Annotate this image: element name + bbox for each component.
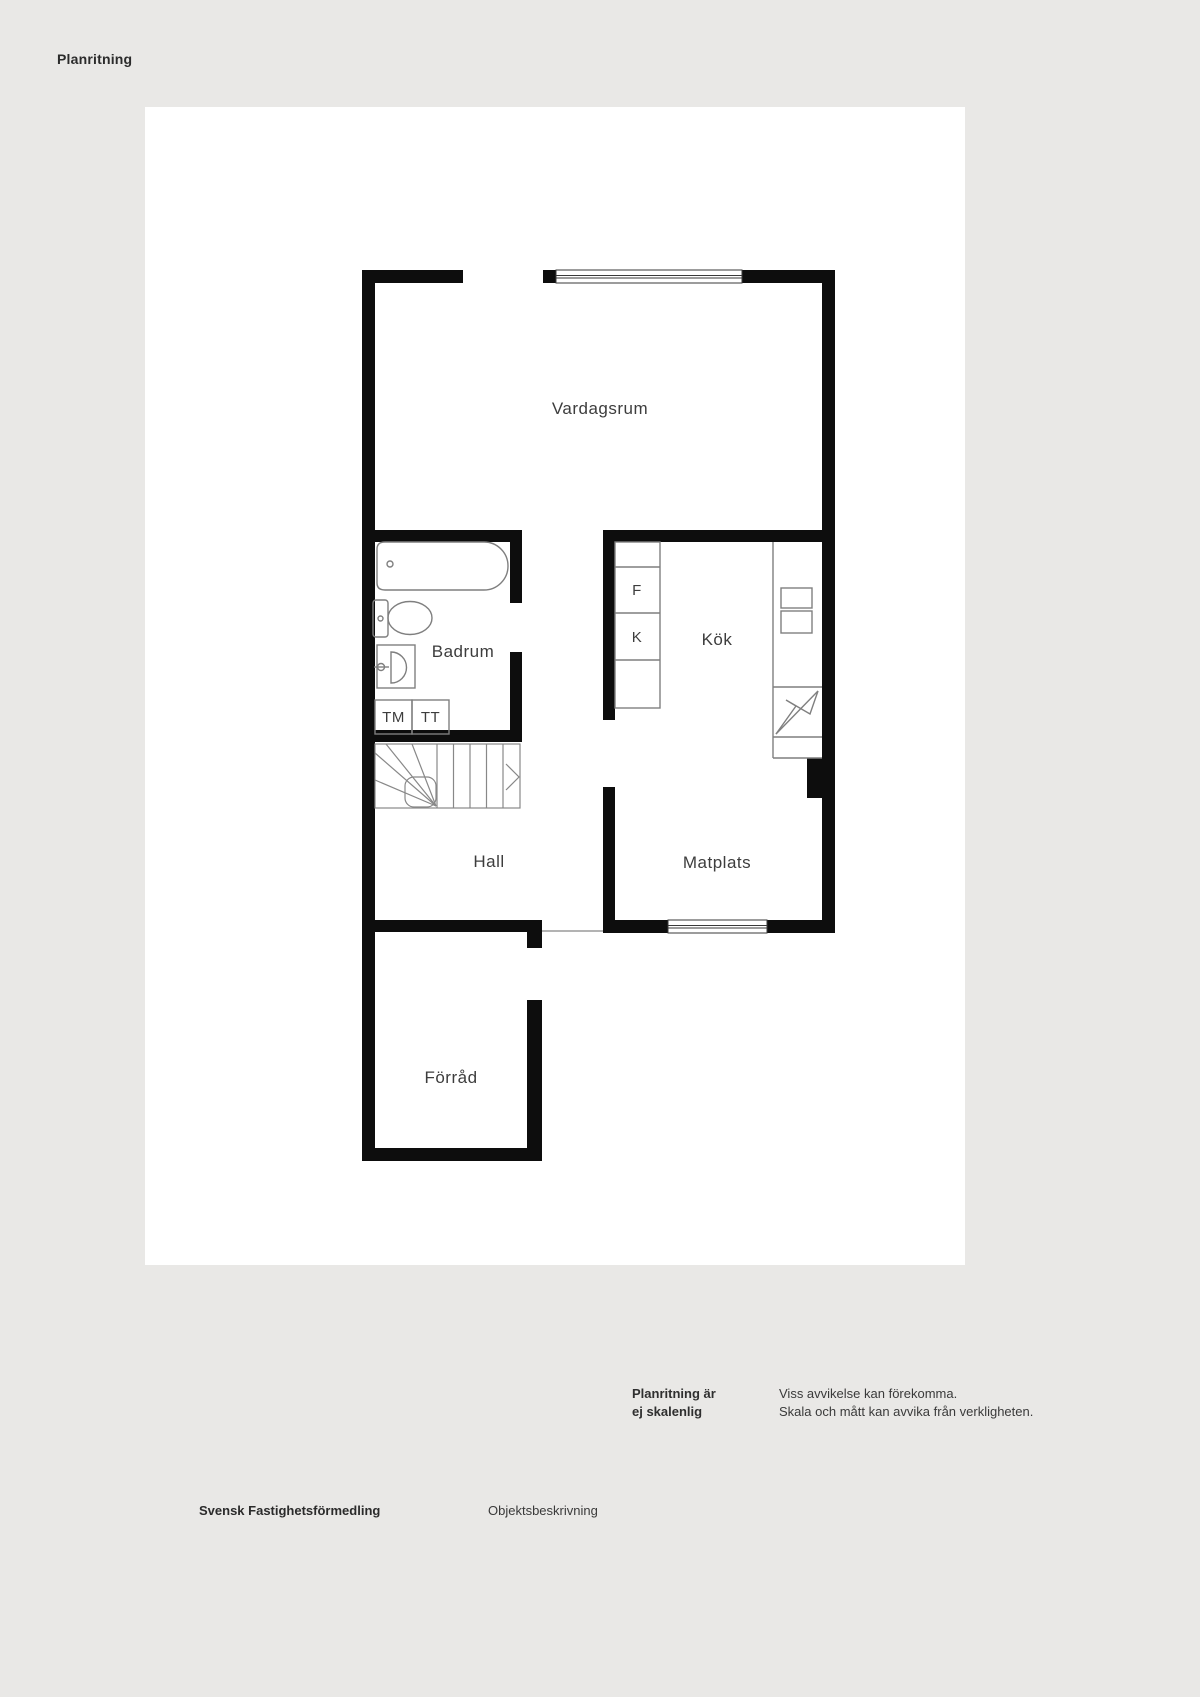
washing-machine-label: TM (382, 709, 405, 726)
disclaimer-deviation-note: Viss avvikelse kan förekomma. Skala och … (779, 1385, 1033, 1421)
sink-basin (391, 652, 406, 683)
room-label-badrum: Badrum (432, 642, 495, 661)
wall-badrum-right-lower (510, 652, 522, 742)
wall-hall-bottom (362, 920, 542, 932)
bathtub (377, 542, 508, 590)
toilet-button (378, 616, 383, 621)
toilet-bowl (388, 602, 432, 635)
sink-basin-1 (781, 588, 812, 608)
room-label-vardagsrum: Vardagsrum (552, 399, 648, 418)
room-label-forrad: Förråd (424, 1068, 477, 1087)
stair-outline (375, 744, 520, 808)
disclaimer-scale-note-line2: ej skalenlig (632, 1403, 716, 1421)
bathtub-drain (387, 561, 393, 567)
room-labels: Vardagsrum Badrum Kök Hall Matplats Förr… (382, 399, 751, 1087)
disclaimer-deviation-line2: Skala och mått kan avvika från verklighe… (779, 1403, 1033, 1421)
stove-diagonal (776, 691, 818, 734)
wall-right (822, 270, 835, 933)
wall-matplats-bottom-a (613, 920, 668, 933)
wall-top-a (362, 270, 463, 283)
wall-forrad-stub (527, 932, 542, 948)
page-title: Planritning (57, 51, 132, 67)
kitchen-fixtures (615, 542, 822, 758)
wall-badrum-bottom (362, 730, 522, 742)
room-label-hall: Hall (473, 852, 504, 871)
tumble-dryer-label: TT (421, 709, 440, 726)
disclaimer-scale-note: Planritning är ej skalenlig (632, 1385, 716, 1421)
room-label-kok: Kök (702, 630, 733, 649)
sink-basin-2 (781, 611, 812, 633)
disclaimer-scale-note-line1: Planritning är (632, 1385, 716, 1403)
toilet-tank (373, 600, 388, 637)
wall-left (362, 270, 375, 1161)
disclaimer-deviation-line1: Viss avvikelse kan förekomma. (779, 1385, 1033, 1403)
bathroom-fixtures (373, 542, 508, 734)
window-vardagsrum (556, 270, 742, 283)
wall-badrum-right-upper (510, 530, 522, 603)
fridge-label: K (632, 629, 643, 646)
wall-badrum-top (362, 530, 522, 542)
wall-notch (807, 758, 835, 798)
windows (556, 270, 767, 933)
wall-matplats-bottom-b (767, 920, 835, 933)
stair-direction-arrow (506, 764, 519, 790)
room-label-matplats: Matplats (683, 853, 751, 872)
wall-forrad-bottom (362, 1148, 540, 1161)
footer-brand: Svensk Fastighetsförmedling (199, 1503, 380, 1518)
brochure-page: Planritning (0, 0, 1200, 1697)
window-matplats (668, 920, 767, 933)
freezer-label: F (632, 582, 642, 599)
wall-kok-left (603, 530, 615, 720)
wall-top-c (742, 270, 835, 283)
staircase (375, 744, 520, 808)
wall-top-b (543, 270, 556, 283)
wall-hall-matplats (603, 787, 615, 933)
wall-kok-top (605, 530, 835, 542)
footer-document-type: Objektsbeskrivning (488, 1503, 598, 1518)
floor-plan-drawing: Vardagsrum Badrum Kök Hall Matplats Förr… (145, 107, 965, 1265)
wall-forrad-right (527, 1000, 542, 1161)
floor-plan-sheet: Vardagsrum Badrum Kök Hall Matplats Förr… (145, 107, 965, 1265)
stair-winder-3 (386, 744, 436, 806)
